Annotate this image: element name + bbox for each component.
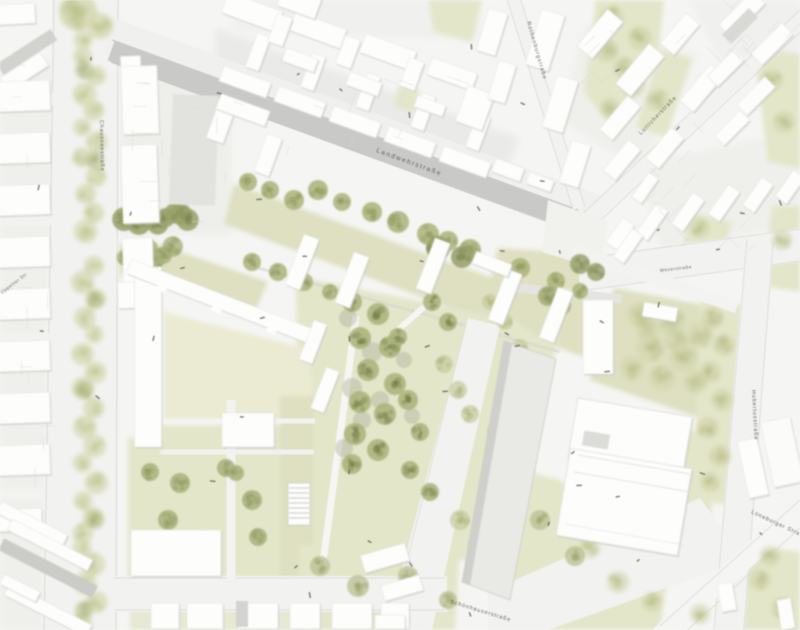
svg-text:Chausseestraße: Chausseestraße bbox=[98, 120, 105, 172]
